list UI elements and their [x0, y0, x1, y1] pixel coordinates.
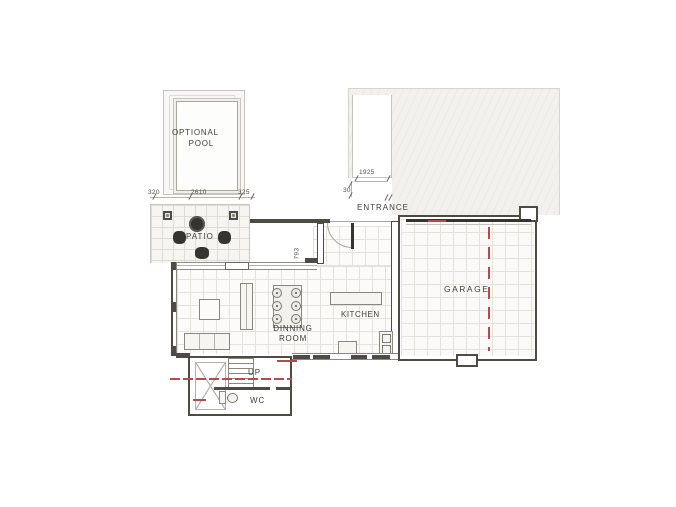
floor-plan-canvas: 1925 30 ENTRANCE OPTIONAL POOL 320 2610 …: [0, 0, 676, 507]
window-segment: [372, 355, 390, 359]
dining-label-line2: ROOM: [279, 334, 307, 343]
patio-table-icon: [189, 216, 205, 232]
garage-door: [406, 219, 531, 222]
dining-label: DINNING ROOM: [270, 324, 316, 344]
dim-pool-width: 2610: [191, 189, 207, 196]
wc-label: WC: [250, 396, 265, 405]
toilet-icon: [219, 391, 226, 404]
entrance-label: ENTRANCE: [357, 203, 409, 212]
window-segment: [313, 355, 330, 359]
patio-label: PATIO: [186, 232, 214, 241]
vestibule-wall: [317, 223, 324, 264]
stairs-up-label: UP: [248, 368, 261, 377]
red-section-mark: [277, 360, 297, 362]
wall-segment: [173, 302, 176, 312]
kitchen-counter: [330, 292, 382, 305]
garage-notch: [456, 354, 478, 367]
window-segment: [293, 355, 310, 359]
front-door-leaf: [351, 223, 354, 249]
garage-door-red-mark: [428, 220, 446, 222]
sliding-door-panel: [225, 262, 249, 270]
dim-setback: 30: [343, 187, 351, 194]
dining-chair-icon: [272, 301, 282, 311]
coffee-table: [199, 299, 220, 320]
patio-chair-icon: [173, 231, 186, 244]
patio-chair-icon: [218, 231, 231, 244]
wc-divider-wall: [214, 387, 270, 390]
dining-chair-icon: [272, 314, 282, 324]
patio-right-edge: [249, 204, 250, 263]
wall-segment: [173, 262, 176, 270]
pool-label-line1: OPTIONAL: [172, 128, 219, 137]
dim-line: [355, 181, 388, 182]
window-segment: [351, 355, 367, 359]
dining-chair-icon: [291, 314, 301, 324]
garage-door-track: [406, 224, 531, 225]
vestibule-threshold: [305, 258, 317, 263]
pool-label-line2: POOL: [189, 139, 214, 148]
sink-basin: [382, 334, 391, 343]
red-section-line: [170, 378, 292, 380]
dining-chair-icon: [291, 301, 301, 311]
south-wall-windows: [292, 353, 398, 360]
dining-chair-icon: [272, 288, 282, 298]
toilet-icon: [227, 393, 238, 403]
pool-label: OPTIONAL POOL: [172, 127, 214, 149]
dining-chair-icon: [291, 288, 301, 298]
patio-column-icon: [229, 211, 238, 220]
dining-label-line1: DINNING: [273, 324, 312, 333]
wc-divider-wall: [276, 387, 290, 390]
patio-column-icon: [163, 211, 172, 220]
dim-hall-depth: 793: [294, 242, 301, 260]
garage-label: GARAGE: [444, 285, 489, 294]
kitchen-label: KITCHEN: [341, 310, 380, 319]
red-section-mark: [193, 399, 206, 401]
dim-walkway: 1925: [359, 169, 375, 176]
entrance-walkway: [352, 95, 392, 178]
patio-chair-icon: [195, 247, 209, 259]
living-left-wall: [171, 262, 177, 356]
sideboard: [240, 283, 253, 330]
door-threshold: [330, 221, 395, 222]
sofa: [184, 333, 230, 350]
